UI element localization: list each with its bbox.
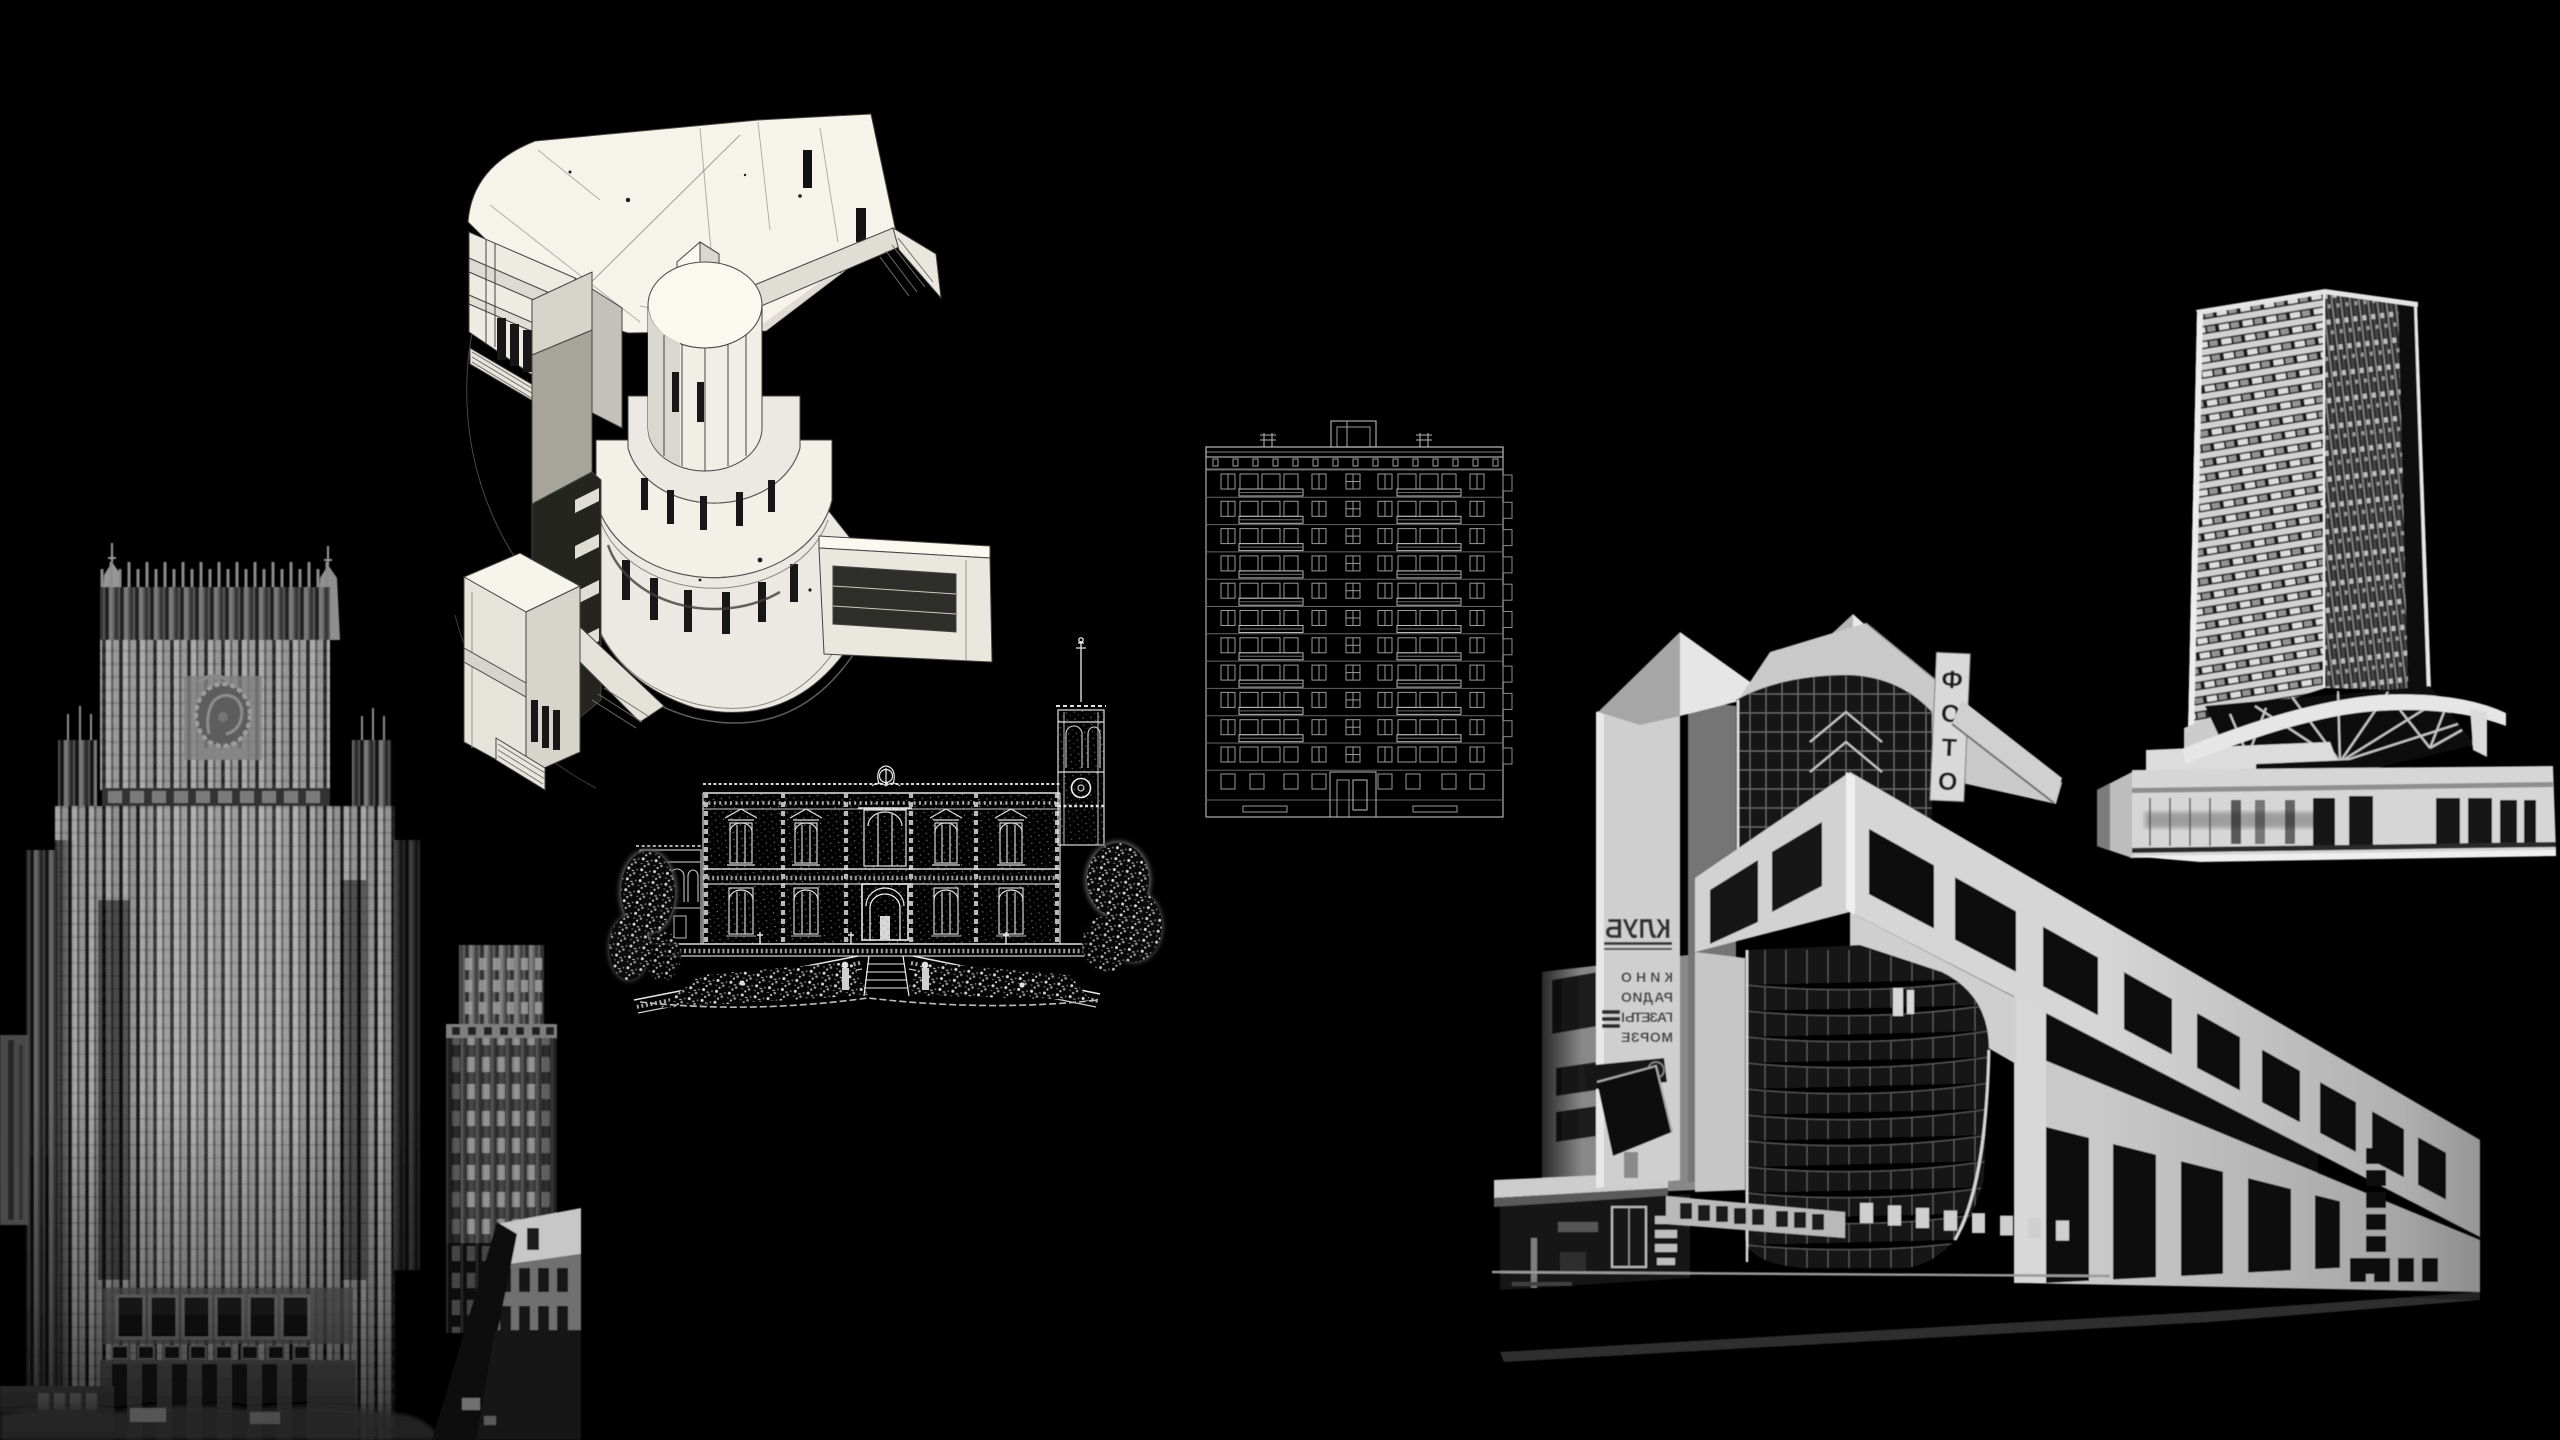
svg-text:Ф: Ф [1941, 666, 1964, 695]
svg-text:КИНО: КИНО [1621, 969, 1673, 985]
svg-text:КЛУБ: КЛУБ [1605, 913, 1671, 944]
svg-text:МОРЗЕ: МОРЗЕ [1621, 1029, 1673, 1045]
svg-text:ГАЗЕТЫ: ГАЗЕТЫ [1621, 1009, 1673, 1025]
svg-text:О: О [1937, 768, 1958, 797]
svg-text:Т: Т [1941, 734, 1957, 763]
svg-text:РАДИО: РАДИО [1621, 989, 1673, 1005]
